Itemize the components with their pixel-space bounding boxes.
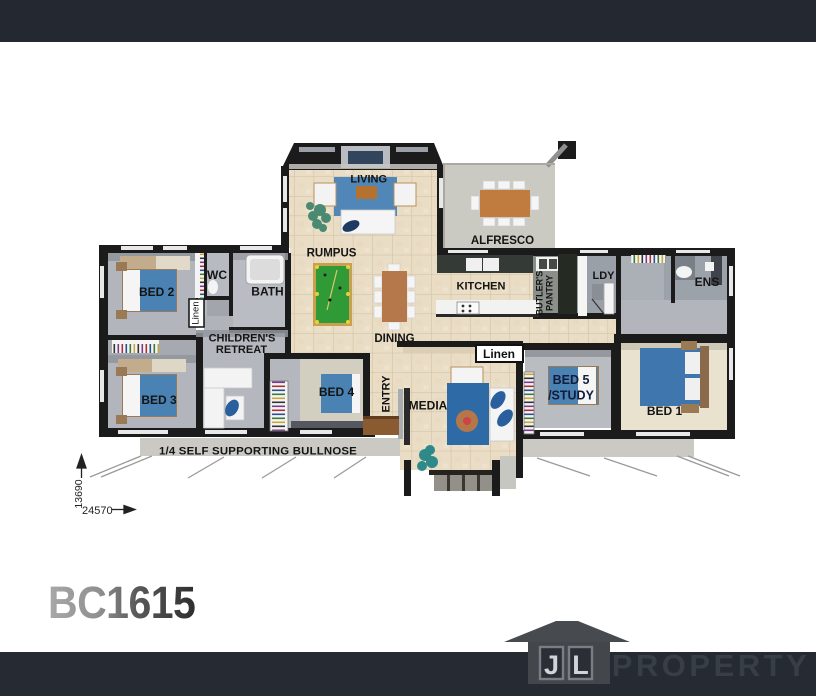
svg-text:CHILDREN'S: CHILDREN'S [209,333,276,345]
svg-text:PROPERTY: PROPERTY [612,648,811,683]
svg-text:24570: 24570 [82,505,113,517]
svg-text:Linen: Linen [483,347,515,361]
svg-text:BED 3: BED 3 [141,393,177,407]
svg-text:BUTLER'S: BUTLER'S [534,271,544,316]
svg-text:J: J [544,650,559,680]
svg-text:/STUDY: /STUDY [548,389,595,403]
svg-text:BED 1: BED 1 [647,404,683,418]
svg-text:L: L [572,650,589,680]
svg-text:WC: WC [207,268,227,282]
svg-text:LDY: LDY [593,270,616,282]
svg-text:Linen: Linen [191,301,202,324]
svg-text:BC1615: BC1615 [48,578,195,628]
svg-text:1/4 SELF SUPPORTING BULLNOSE: 1/4 SELF SUPPORTING BULLNOSE [159,446,357,458]
svg-text:BED 4: BED 4 [319,385,355,399]
svg-text:LIVING: LIVING [350,174,387,186]
svg-text:KITCHEN: KITCHEN [457,281,506,293]
svg-text:BED 5: BED 5 [553,373,590,387]
svg-text:ENS: ENS [695,275,720,289]
svg-text:ALFRESCO: ALFRESCO [471,235,534,247]
svg-text:MEDIA: MEDIA [409,399,448,413]
svg-text:PANTRY: PANTRY [544,275,554,311]
svg-text:ENTRY: ENTRY [380,375,392,413]
svg-text:BED 2: BED 2 [139,285,175,299]
svg-text:BATH: BATH [251,285,283,299]
svg-text:RETREAT: RETREAT [216,344,267,356]
svg-text:DINING: DINING [374,333,414,345]
svg-text:RUMPUS: RUMPUS [307,248,357,260]
